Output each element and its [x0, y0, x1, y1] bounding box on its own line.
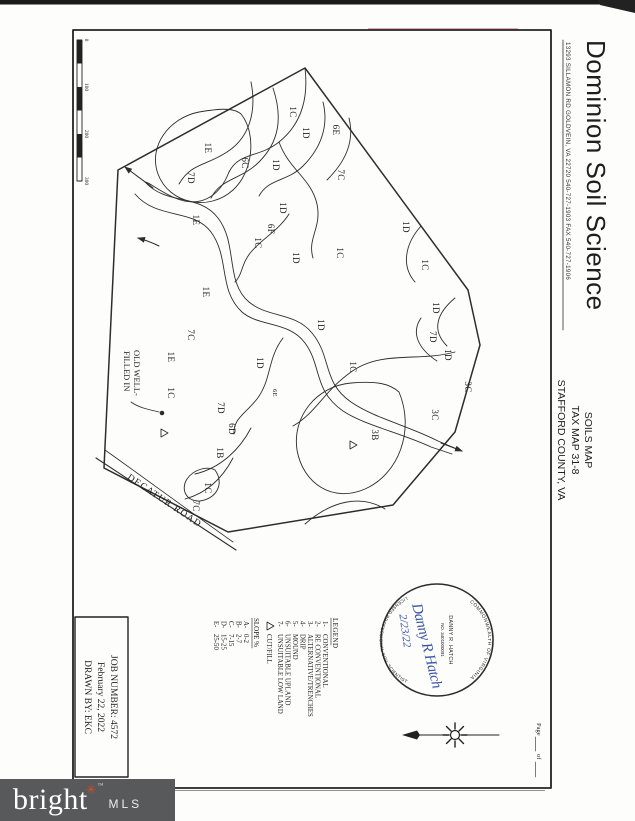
soil-label: 1D	[301, 127, 311, 139]
legend: LEGEND 1- CONVENTIONAL 2- RE CONVENTIONA…	[212, 618, 339, 717]
scan-bottom-edge-line	[175, 790, 545, 791]
compass-star-icon	[443, 723, 467, 747]
soil-label: 1C	[253, 237, 263, 248]
soil-label: 6D	[227, 423, 237, 435]
soil-label: 1C	[166, 387, 176, 398]
title-block: Dominion Soil Science 13293 SILLAMON RD …	[555, 40, 611, 500]
drainage-arrow	[441, 443, 462, 451]
sheet-title-line2: TAX MAP 31-8	[569, 405, 581, 474]
road-line-2	[105, 450, 233, 542]
soil-label: 7D	[428, 331, 438, 343]
of-label: of	[535, 754, 542, 760]
north-arrow-head	[402, 731, 420, 740]
cutfill-symbol	[350, 441, 357, 449]
page-label: Page	[535, 723, 542, 736]
slope-value: 7-15	[227, 634, 234, 647]
slope-value: 25-50	[212, 634, 219, 650]
drainage-arrow	[125, 167, 153, 188]
scanned-soils-map-sheet: Dominion Soil Science 13293 SILLAMON RD …	[0, 0, 635, 821]
soil-label: 1D	[431, 302, 441, 314]
scan-edge-corner	[598, 0, 635, 13]
job-drawn-by: DRAWN BY: EKC	[82, 660, 92, 734]
north-arrow	[402, 723, 499, 747]
scale-tick-300: 300	[83, 177, 89, 186]
soil-label: 7C	[191, 500, 201, 511]
old-well-label-1: OLD WELL-	[132, 350, 142, 396]
brightmls-sub-wordmark: MLS	[108, 797, 142, 811]
legend-key: 3-	[306, 621, 313, 627]
legend-item: UNSUITABLE LOW LAND	[276, 634, 283, 714]
soil-boundary-lines	[145, 68, 455, 524]
signature-date: 2/23/22	[396, 613, 413, 648]
legend-item: UNSUITABLE UPLAND	[284, 634, 291, 705]
scale-tick-100: 100	[83, 83, 89, 92]
soil-label: 3C	[430, 409, 440, 420]
scan-edge-top	[0, 0, 635, 5]
slope-value: 0-2	[242, 634, 249, 644]
slope-title: SLOPE %	[252, 618, 260, 647]
soil-label: 1E	[203, 143, 213, 154]
map-text: OLD WELL- FILLED IN DECATUR ROAD 1C 1D 6…	[122, 106, 473, 530]
scale-tick-0: 0	[83, 39, 89, 42]
legend-item: ALTERNATIVE/TRENCHES	[306, 634, 313, 717]
old-well-leader	[131, 402, 159, 412]
soil-label: 1C	[335, 247, 345, 258]
soil-label: 6E	[271, 389, 278, 397]
cutfill-symbol	[161, 429, 168, 437]
parcel-map	[96, 68, 480, 550]
slope-key: C-	[227, 621, 234, 629]
old-well-label-2: FILLED IN	[122, 351, 132, 391]
soil-labels: 1C 1D 6E 7C 1D 6C 1E 7D 1E 1D 6F 1C 1D 1…	[166, 106, 473, 511]
soil-label: 1C	[420, 259, 430, 270]
brightmls-logo: bright✳™MLS	[0, 779, 175, 821]
soil-label: 1D	[255, 357, 265, 369]
company-address: 13293 SILLAMON RD GOLDVEIN, VA 22720 540…	[564, 42, 571, 280]
soil-label: 1C	[348, 361, 358, 372]
job-date: February 22, 2022	[95, 662, 105, 732]
legend-item: CONVENTIONAL	[321, 634, 328, 688]
cutfill-legend-symbol	[267, 622, 274, 630]
soil-label: 7C	[336, 169, 346, 180]
brightmls-tm: ™	[98, 783, 104, 789]
svg-text:COMMONWEALTH OF VIRGINIA: COMMONWEALTH OF VIRGINIA	[468, 599, 492, 681]
legend-item: RE CONVENTIONAL	[314, 634, 321, 698]
company-name: Dominion Soil Science	[581, 40, 611, 311]
soil-label: 1D	[291, 252, 301, 264]
soil-label: 6F	[266, 224, 276, 234]
slope-value: 2-7	[235, 634, 242, 644]
slope-value: 15-25	[220, 634, 227, 650]
slope-key: B-	[235, 621, 242, 629]
legend-key: 4-	[299, 621, 306, 627]
soil-label: 1D	[443, 349, 453, 361]
soil-label: 1D	[401, 221, 411, 233]
seal-arc-top: COMMONWEALTH OF VIRGINIA	[468, 599, 492, 681]
legend-key: 6-	[284, 621, 291, 627]
soil-label: 1B	[215, 447, 225, 458]
stream-line	[135, 194, 452, 454]
seal-name: DANNY R. HATCH	[447, 615, 453, 664]
sheet-title-line3: STAFFORD COUNTY, VA	[555, 380, 567, 501]
soil-label: 7D	[186, 172, 196, 184]
slope-key: E-	[212, 621, 219, 628]
parcel-boundary	[104, 68, 480, 532]
soil-label: 1E	[166, 352, 176, 363]
soil-label: 7D	[216, 402, 226, 414]
legend-key: 5-	[291, 621, 298, 627]
drainage-arrow	[138, 238, 159, 246]
soil-label: 1E	[191, 215, 201, 226]
soil-label: 6C	[240, 157, 250, 168]
slope-key: D-	[220, 621, 227, 629]
soil-label: 1D	[316, 319, 326, 331]
brightmls-star-icon: ✳	[86, 782, 97, 798]
scale-bar: 0 100 200 300	[77, 39, 89, 186]
old-well-dot	[160, 411, 165, 416]
soil-label: 3C	[463, 381, 473, 392]
legend-item: MOUND	[291, 634, 298, 660]
scale-tick-200: 200	[83, 130, 89, 139]
soil-label: 3B	[370, 429, 380, 440]
soil-label: 1D	[271, 159, 281, 171]
legend-key: 7-	[276, 621, 283, 627]
slope-key: A-	[242, 621, 249, 629]
legend-cutfill: CUT/FILL	[265, 634, 272, 664]
legend-key: 1-	[321, 621, 328, 627]
seal-number: NO. 3401000091	[440, 623, 445, 657]
soil-label: 7C	[186, 329, 196, 340]
landscape-drawing: Dominion Soil Science 13293 SILLAMON RD …	[73, 30, 611, 788]
legend-title: LEGEND	[331, 618, 339, 648]
sheet-title-line1: SOILS MAP	[582, 412, 594, 469]
soil-label: 1C	[203, 482, 213, 493]
brightmls-wordmark: bright	[13, 785, 88, 815]
legend-key: 2-	[314, 621, 321, 627]
professional-seal: COMMONWEALTH OF VIRGINIA LICENSED PROFES…	[379, 584, 493, 696]
soil-label: 6E	[331, 125, 341, 136]
page-footer: Page of	[535, 723, 542, 777]
legend-item: DRIP	[299, 634, 306, 650]
soil-label: 1C	[288, 106, 298, 117]
soil-label: 1D	[278, 202, 288, 214]
soil-label: 1E	[201, 287, 211, 298]
job-box: JOB NUMBER: 4572 February 22, 2022 DRAWN…	[75, 617, 128, 777]
job-number: JOB NUMBER: 4572	[108, 655, 118, 739]
